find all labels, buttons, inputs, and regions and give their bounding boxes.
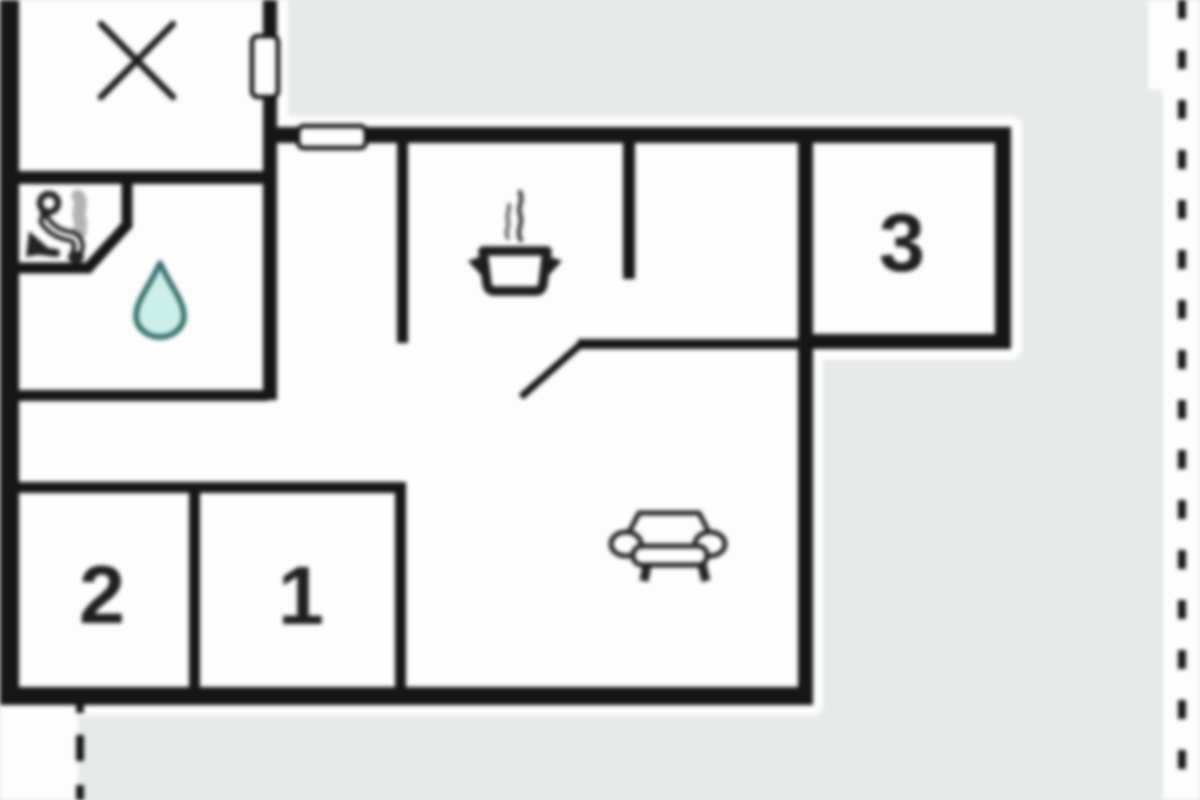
svg-text:1: 1 [278, 549, 324, 642]
svg-text:2: 2 [79, 548, 125, 641]
svg-text:3: 3 [879, 196, 925, 289]
